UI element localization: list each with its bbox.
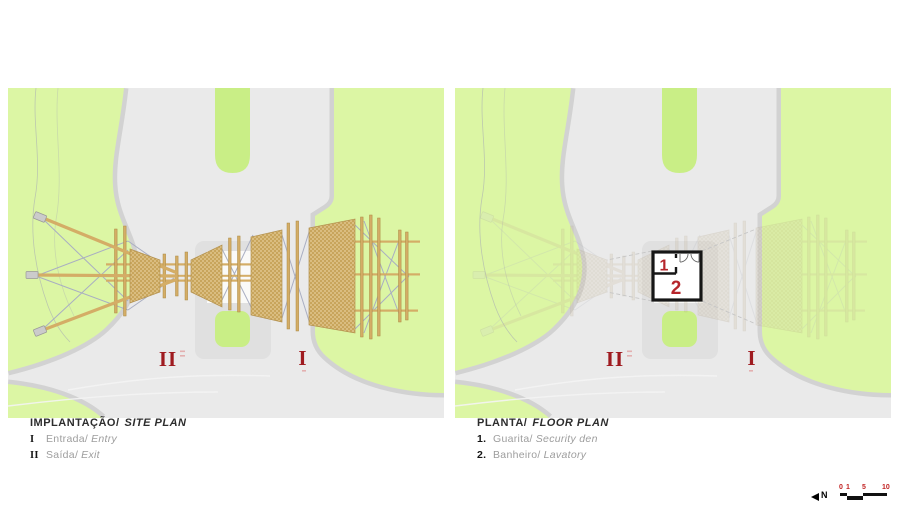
floor-plan-title-pt: PLANTA/ — [477, 417, 527, 429]
scale-tick: 10 — [882, 484, 890, 491]
legend-text-en: Security den — [536, 433, 598, 445]
legend-item-exit: IISaída/Exit — [30, 449, 330, 461]
legend-text-pt: Banheiro/ — [493, 449, 541, 461]
legend-text-pt: Guarita/ — [493, 433, 533, 445]
site-plan-title: IMPLANTAÇÃO/SITE PLAN — [30, 417, 330, 429]
site-plan-map: II I — [8, 88, 444, 418]
legend-text-en: Exit — [81, 449, 100, 461]
north-label: N — [821, 490, 828, 500]
legend-key: I — [30, 434, 44, 445]
exit-label-floor: II — [606, 347, 624, 371]
guardhouse-floor-plan: 1 2 — [653, 252, 701, 300]
scale-tick: 5 — [862, 484, 866, 491]
site-plan-legend: IMPLANTAÇÃO/SITE PLAN IEntrada/Entry IIS… — [30, 417, 330, 461]
scale-segment — [840, 493, 847, 496]
legend-text-en: Entry — [91, 433, 117, 445]
legend-text-en: Lavatory — [544, 449, 587, 461]
floor-plan-legend: PLANTA/FLOOR PLAN 1.Guarita/Security den… — [477, 417, 777, 461]
floor-plan-map: 1 2 II I — [455, 88, 891, 418]
drawing-tools: N 0 1 5 10 — [805, 484, 897, 510]
scale-segment — [847, 496, 863, 500]
scale-bar: 0 1 5 10 — [838, 484, 894, 504]
legend-text-pt: Saída/ — [46, 449, 78, 461]
site-plan-title-pt: IMPLANTAÇÃO/ — [30, 417, 120, 429]
site-plan-title-en: SITE PLAN — [125, 417, 187, 429]
floor-plan-title-en: FLOOR PLAN — [532, 417, 609, 429]
scale-tick: 1 — [846, 484, 850, 491]
entry-label-site: I — [298, 346, 307, 370]
entry-label-floor: I — [747, 346, 756, 370]
legend-key: 2. — [477, 449, 491, 461]
north-arrow: N — [805, 490, 831, 504]
legend-item-lavatory: 2.Banheiro/Lavatory — [477, 449, 777, 461]
scale-segment — [863, 493, 887, 496]
scale-tick: 0 — [839, 484, 843, 491]
room-2-label: 2 — [671, 278, 682, 299]
legend-text-pt: Entrada/ — [46, 433, 88, 445]
legend-item-guardhouse: 1.Guarita/Security den — [477, 433, 777, 445]
exit-label-site: II — [159, 347, 177, 371]
room-1-label: 1 — [660, 258, 669, 275]
legend-key: II — [30, 450, 44, 461]
legend-key: 1. — [477, 433, 491, 445]
legend-item-entry: IEntrada/Entry — [30, 433, 330, 445]
floor-plan-title: PLANTA/FLOOR PLAN — [477, 417, 777, 429]
drawing-sheet: II I 1 2 II I IMPLANTAÇÃO/SITE — [0, 0, 900, 516]
north-arrow-icon — [811, 493, 819, 501]
